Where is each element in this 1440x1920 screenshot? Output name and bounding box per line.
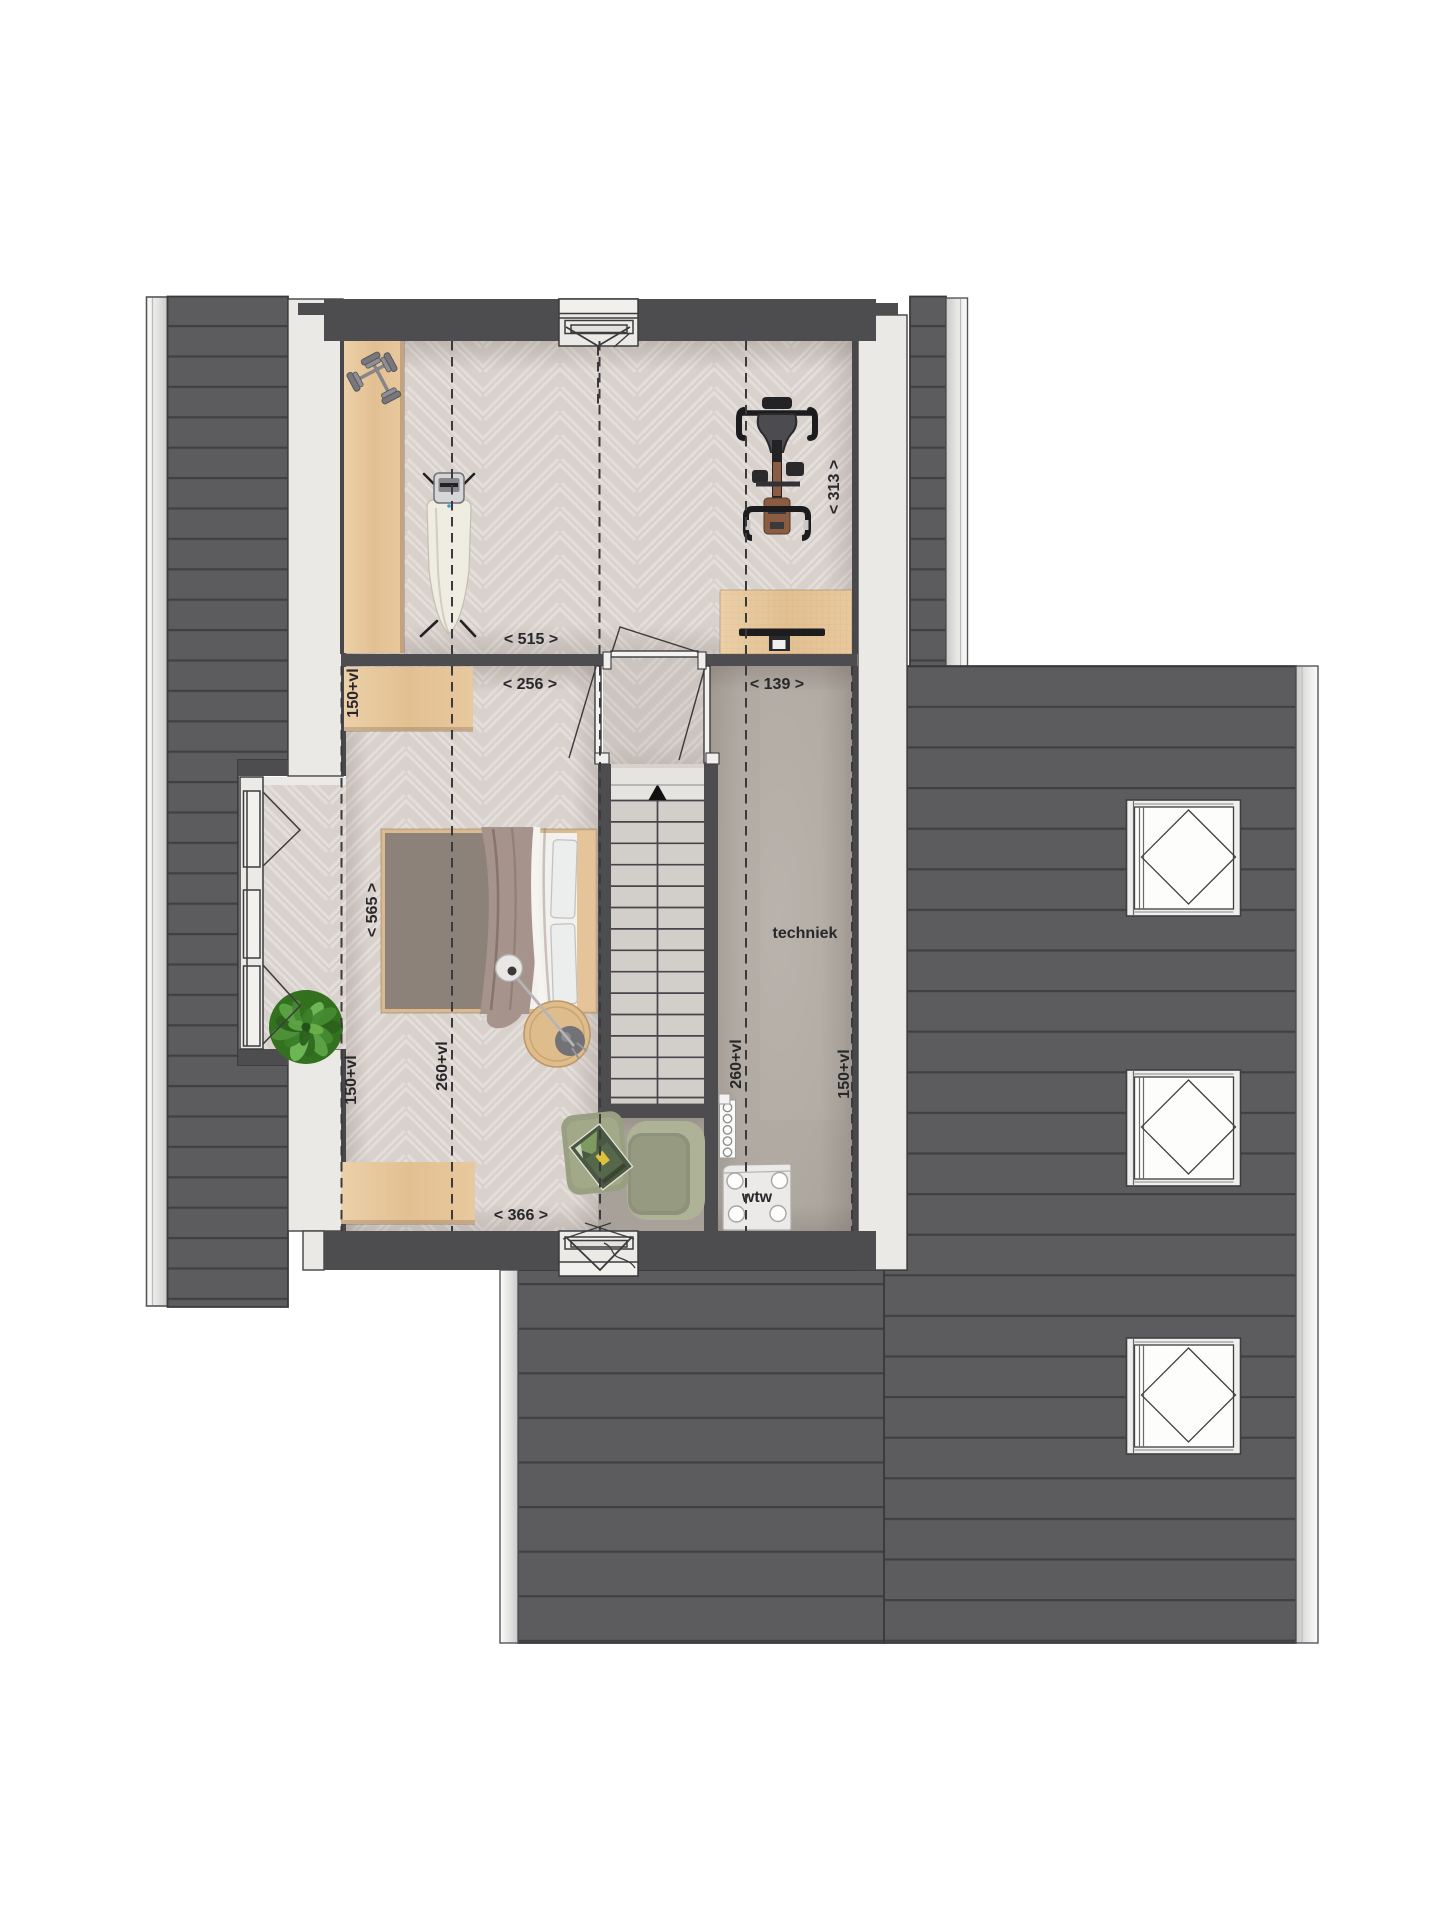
svg-text:techniek: techniek xyxy=(773,925,838,942)
svg-text:< 366 >: < 366 > xyxy=(494,1207,548,1224)
svg-text:< 565 >: < 565 > xyxy=(364,883,381,937)
svg-text:260+vl: 260+vl xyxy=(434,1041,451,1090)
svg-text:< 515 >: < 515 > xyxy=(504,631,558,648)
svg-text:150+vl: 150+vl xyxy=(345,668,362,717)
svg-text:150+vl: 150+vl xyxy=(836,1049,853,1098)
svg-text:260+vl: 260+vl xyxy=(728,1039,745,1088)
svg-text:< 313 >: < 313 > xyxy=(826,460,843,514)
svg-text:< 256 >: < 256 > xyxy=(503,676,557,693)
svg-text:150+vl: 150+vl xyxy=(343,1055,360,1104)
svg-text:< 139 >: < 139 > xyxy=(750,676,804,693)
